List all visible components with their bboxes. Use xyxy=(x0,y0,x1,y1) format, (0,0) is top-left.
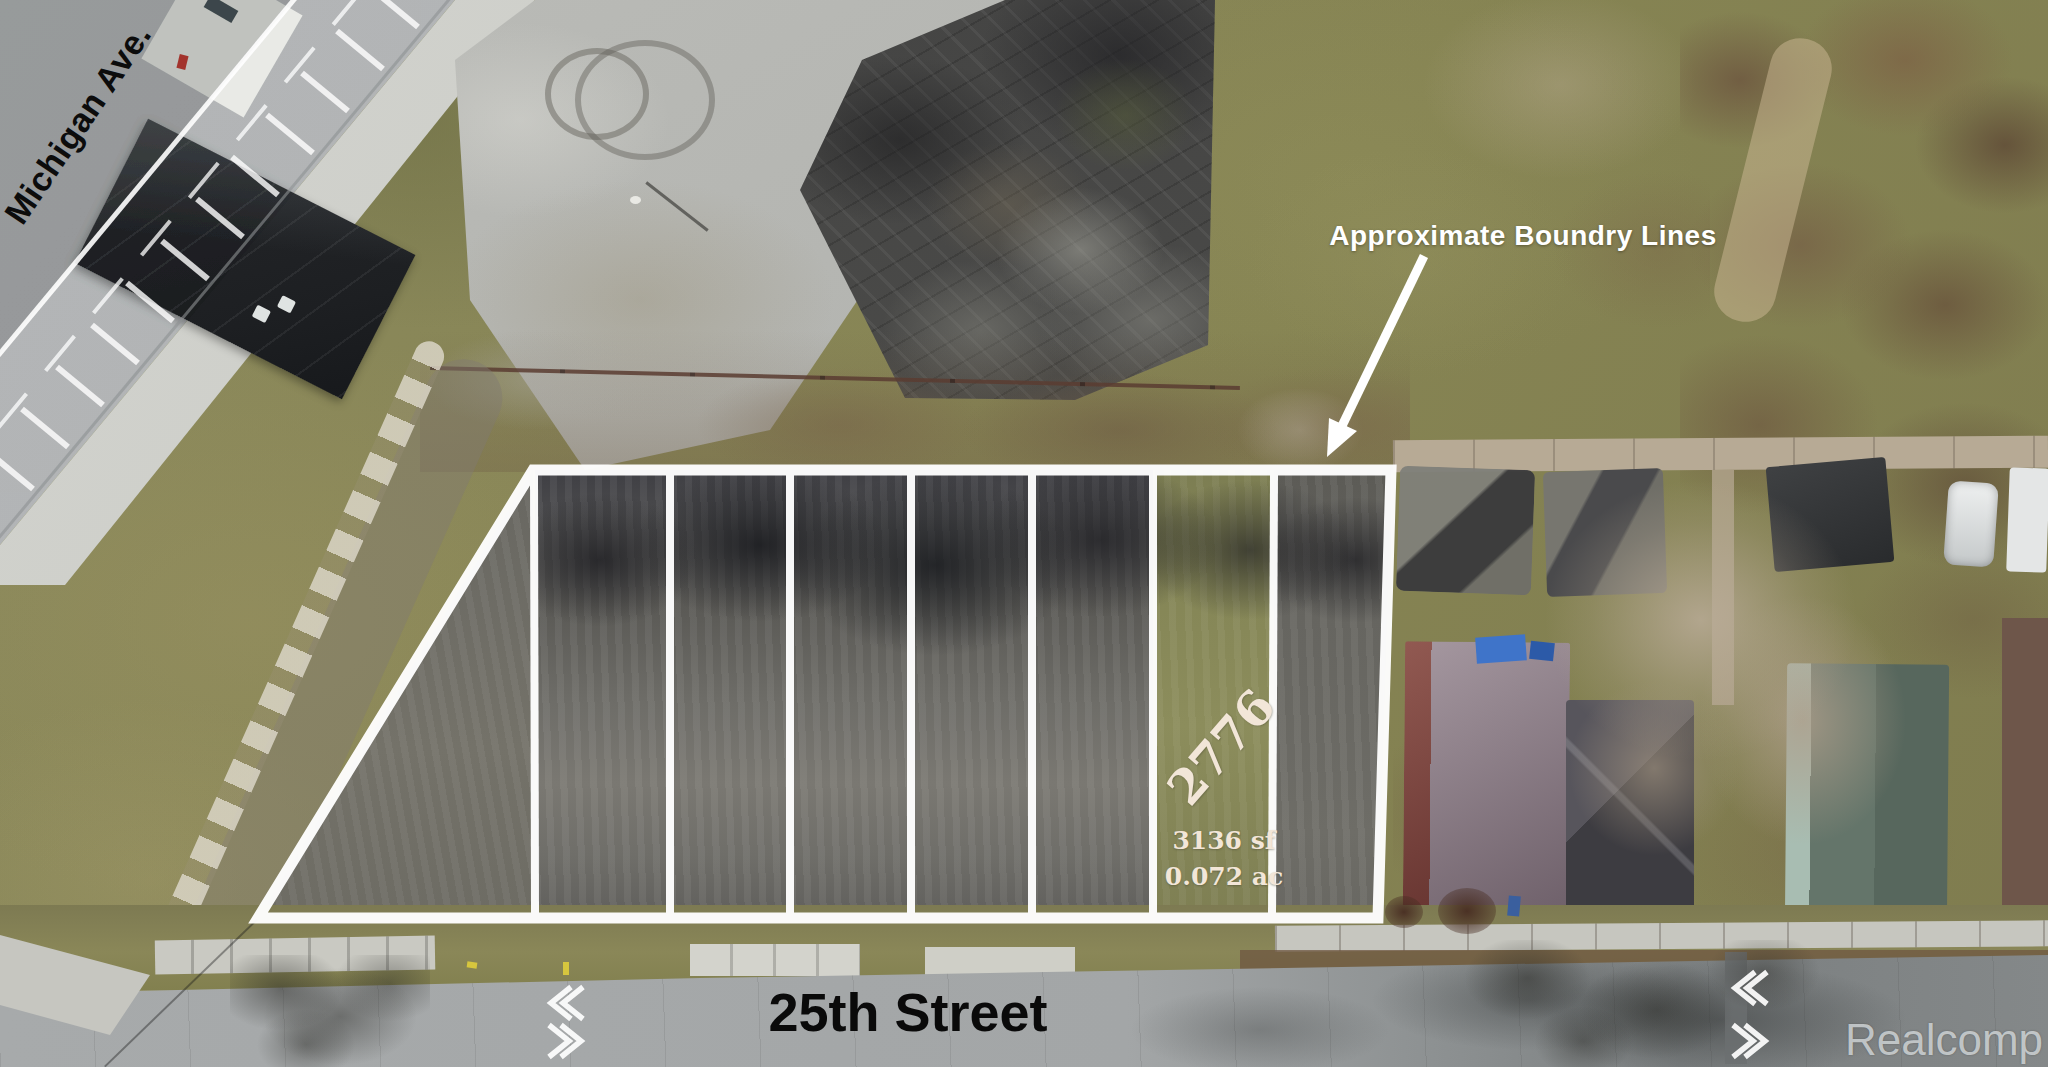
boundary-note-label: Approximate Boundry Lines xyxy=(1329,220,1716,252)
realcomp-watermark: Realcomp xyxy=(1845,1015,2043,1065)
lot-area-acres-label: 0.072 ac xyxy=(1165,862,1283,891)
street-name-label: 25th Street xyxy=(768,981,1047,1043)
lot-area-sqft-label: 3136 sf xyxy=(1172,826,1275,855)
photo-vignette xyxy=(0,0,2048,1067)
aerial-listing-photo: Michigan Ave. Approximate Boundry Lines … xyxy=(0,0,2048,1067)
